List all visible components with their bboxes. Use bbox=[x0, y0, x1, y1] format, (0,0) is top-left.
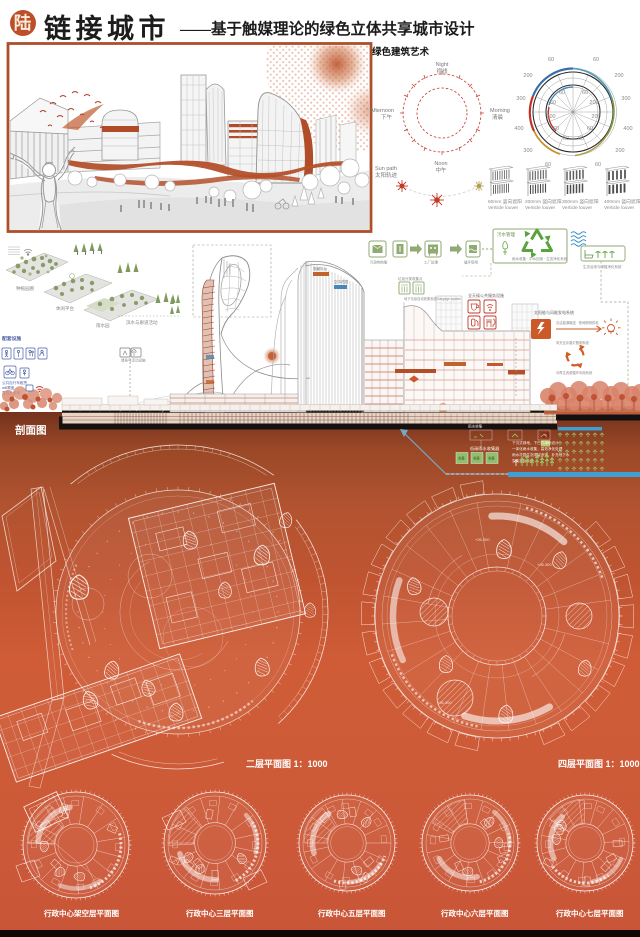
svg-text:配套设施: 配套设施 bbox=[2, 335, 21, 342]
svg-text:空中花园: 空中花园 bbox=[334, 279, 348, 284]
svg-text:行政中心架空层平面图: 行政中心架空层平面图 bbox=[43, 908, 119, 918]
svg-text:雨水收集: 雨水收集 bbox=[468, 424, 483, 429]
svg-text:工厂处理: 工厂处理 bbox=[424, 260, 438, 265]
svg-text:200: 200 bbox=[591, 114, 600, 120]
svg-text:清晨: 清晨 bbox=[492, 113, 504, 121]
svg-text:300mm 竖向遮阳: 300mm 竖向遮阳 bbox=[562, 198, 599, 205]
svg-text:种植园圃: 种植园圃 bbox=[16, 285, 34, 292]
svg-text:循环使用: 循环使用 bbox=[464, 260, 478, 265]
svg-text:下午: 下午 bbox=[381, 113, 393, 121]
svg-text:低碳雨水收集器: 低碳雨水收集器 bbox=[470, 445, 500, 452]
svg-text:行政中心六层平面图: 行政中心六层平面图 bbox=[440, 908, 509, 918]
svg-text:污染物收集: 污染物收集 bbox=[370, 260, 388, 265]
svg-text:200mm 竖向遮阳: 200mm 竖向遮阳 bbox=[525, 198, 562, 205]
svg-text:Verticle louver: Verticle louver bbox=[525, 205, 556, 211]
svg-text:Afternoon: Afternoon bbox=[370, 108, 394, 114]
svg-text:400: 400 bbox=[514, 126, 523, 132]
svg-text:300: 300 bbox=[516, 96, 525, 102]
svg-text:垃圾分类收集点: 垃圾分类收集点 bbox=[398, 276, 423, 281]
svg-text:四层平面图 1：1000: 四层平面图 1：1000 bbox=[558, 759, 640, 769]
svg-text:生态浴池与绿植净化系统: 生态浴池与绿植净化系统 bbox=[583, 264, 622, 269]
svg-text:滨水与廊道活动: 滨水与廊道活动 bbox=[126, 319, 158, 326]
svg-text:60: 60 bbox=[587, 126, 593, 132]
svg-text:Verticle louver: Verticle louver bbox=[604, 205, 635, 211]
svg-text:太阳轨迹: 太阳轨迹 bbox=[375, 171, 398, 179]
svg-text:300: 300 bbox=[523, 148, 532, 154]
svg-text:清洁能源输送 · 夜间照明供电: 清洁能源输送 · 夜间照明供电 bbox=[556, 320, 599, 325]
svg-text:Night: Night bbox=[436, 62, 449, 68]
svg-text:200: 200 bbox=[546, 114, 555, 120]
svg-text:60: 60 bbox=[582, 90, 588, 96]
svg-text:雨水园: 雨水园 bbox=[96, 322, 110, 329]
svg-text:雨水收集 · 中水回用 · 生态净化系统: 雨水收集 · 中水回用 · 生态净化系统 bbox=[512, 256, 568, 261]
svg-text:收集: 收集 bbox=[488, 456, 495, 461]
svg-text:Verticle louver: Verticle louver bbox=[562, 205, 593, 211]
svg-text:60mm 竖向遮阳: 60mm 竖向遮阳 bbox=[488, 198, 522, 205]
svg-text:可再生资源循环利用系统: 可再生资源循环利用系统 bbox=[556, 370, 593, 375]
svg-text:休闲平台: 休闲平台 bbox=[56, 305, 74, 312]
svg-text:视线: 视线 bbox=[436, 67, 448, 75]
svg-text:200: 200 bbox=[523, 73, 532, 79]
svg-text:60: 60 bbox=[548, 57, 554, 63]
svg-text:+26.300: +26.300 bbox=[475, 537, 490, 542]
svg-text:下沉式绿地，下凹式绿地设计: 下沉式绿地，下凹式绿地设计 bbox=[512, 440, 559, 445]
svg-text:200: 200 bbox=[615, 148, 624, 154]
svg-text:Morning: Morning bbox=[490, 108, 510, 114]
svg-text:60: 60 bbox=[578, 136, 584, 142]
svg-text:一体化雨水收集，高效净化处理: 一体化雨水收集，高效净化处理 bbox=[512, 446, 563, 451]
svg-text:中午: 中午 bbox=[435, 166, 447, 174]
svg-text:+26.300: +26.300 bbox=[537, 562, 552, 567]
svg-text:收集: 收集 bbox=[473, 456, 480, 461]
svg-text:400mm 竖向遮阳: 400mm 竖向遮阳 bbox=[604, 198, 640, 205]
svg-text:剖面图: 剖面图 bbox=[15, 424, 47, 437]
svg-text:60: 60 bbox=[553, 126, 559, 132]
svg-text:200: 200 bbox=[614, 73, 623, 79]
svg-text:+26.300: +26.300 bbox=[437, 700, 452, 705]
svg-text:行政中心五层平面图: 行政中心五层平面图 bbox=[317, 908, 386, 918]
svg-text:污水管理: 污水管理 bbox=[497, 231, 515, 238]
svg-text:行政中心七层平面图: 行政中心七层平面图 bbox=[555, 908, 624, 918]
svg-text:Verticle louver: Verticle louver bbox=[488, 205, 519, 211]
svg-text:60: 60 bbox=[595, 162, 601, 168]
svg-text:Noon: Noon bbox=[434, 161, 447, 167]
svg-text:60: 60 bbox=[559, 90, 565, 96]
svg-text:行政中心三层平面图: 行政中心三层平面图 bbox=[185, 908, 254, 918]
svg-text:60: 60 bbox=[563, 136, 569, 142]
svg-text:雨水花园生态滞留渗透，补充地下水: 雨水花园生态滞留渗透，补充地下水 bbox=[512, 452, 570, 457]
svg-text:Sun path: Sun path bbox=[375, 166, 397, 172]
svg-text:60: 60 bbox=[593, 57, 599, 63]
svg-text:风光互补路灯照明系统: 风光互补路灯照明系统 bbox=[556, 340, 590, 345]
svg-text:太阳能与风能发电系统: 太阳能与风能发电系统 bbox=[534, 309, 574, 315]
svg-text:地下垃圾自动收集系统Gargage system: 地下垃圾自动收集系统Gargage system bbox=[404, 296, 461, 301]
svg-text:公共自行车租赁: 公共自行车租赁 bbox=[2, 380, 28, 385]
svg-text:健身与活动设施: 健身与活动设施 bbox=[121, 358, 146, 363]
svg-text:60: 60 bbox=[550, 100, 556, 106]
svg-text:wifi覆盖: wifi覆盖 bbox=[2, 385, 15, 390]
svg-text:观景平台: 观景平台 bbox=[313, 266, 327, 271]
svg-text:200: 200 bbox=[589, 100, 598, 106]
svg-text:二层平面图 1：1000: 二层平面图 1：1000 bbox=[246, 759, 328, 769]
svg-text:400: 400 bbox=[623, 126, 632, 132]
svg-text:300: 300 bbox=[621, 96, 630, 102]
svg-text:全天候公共服务设施: 全天候公共服务设施 bbox=[468, 292, 504, 298]
svg-text:收集: 收集 bbox=[458, 456, 465, 461]
